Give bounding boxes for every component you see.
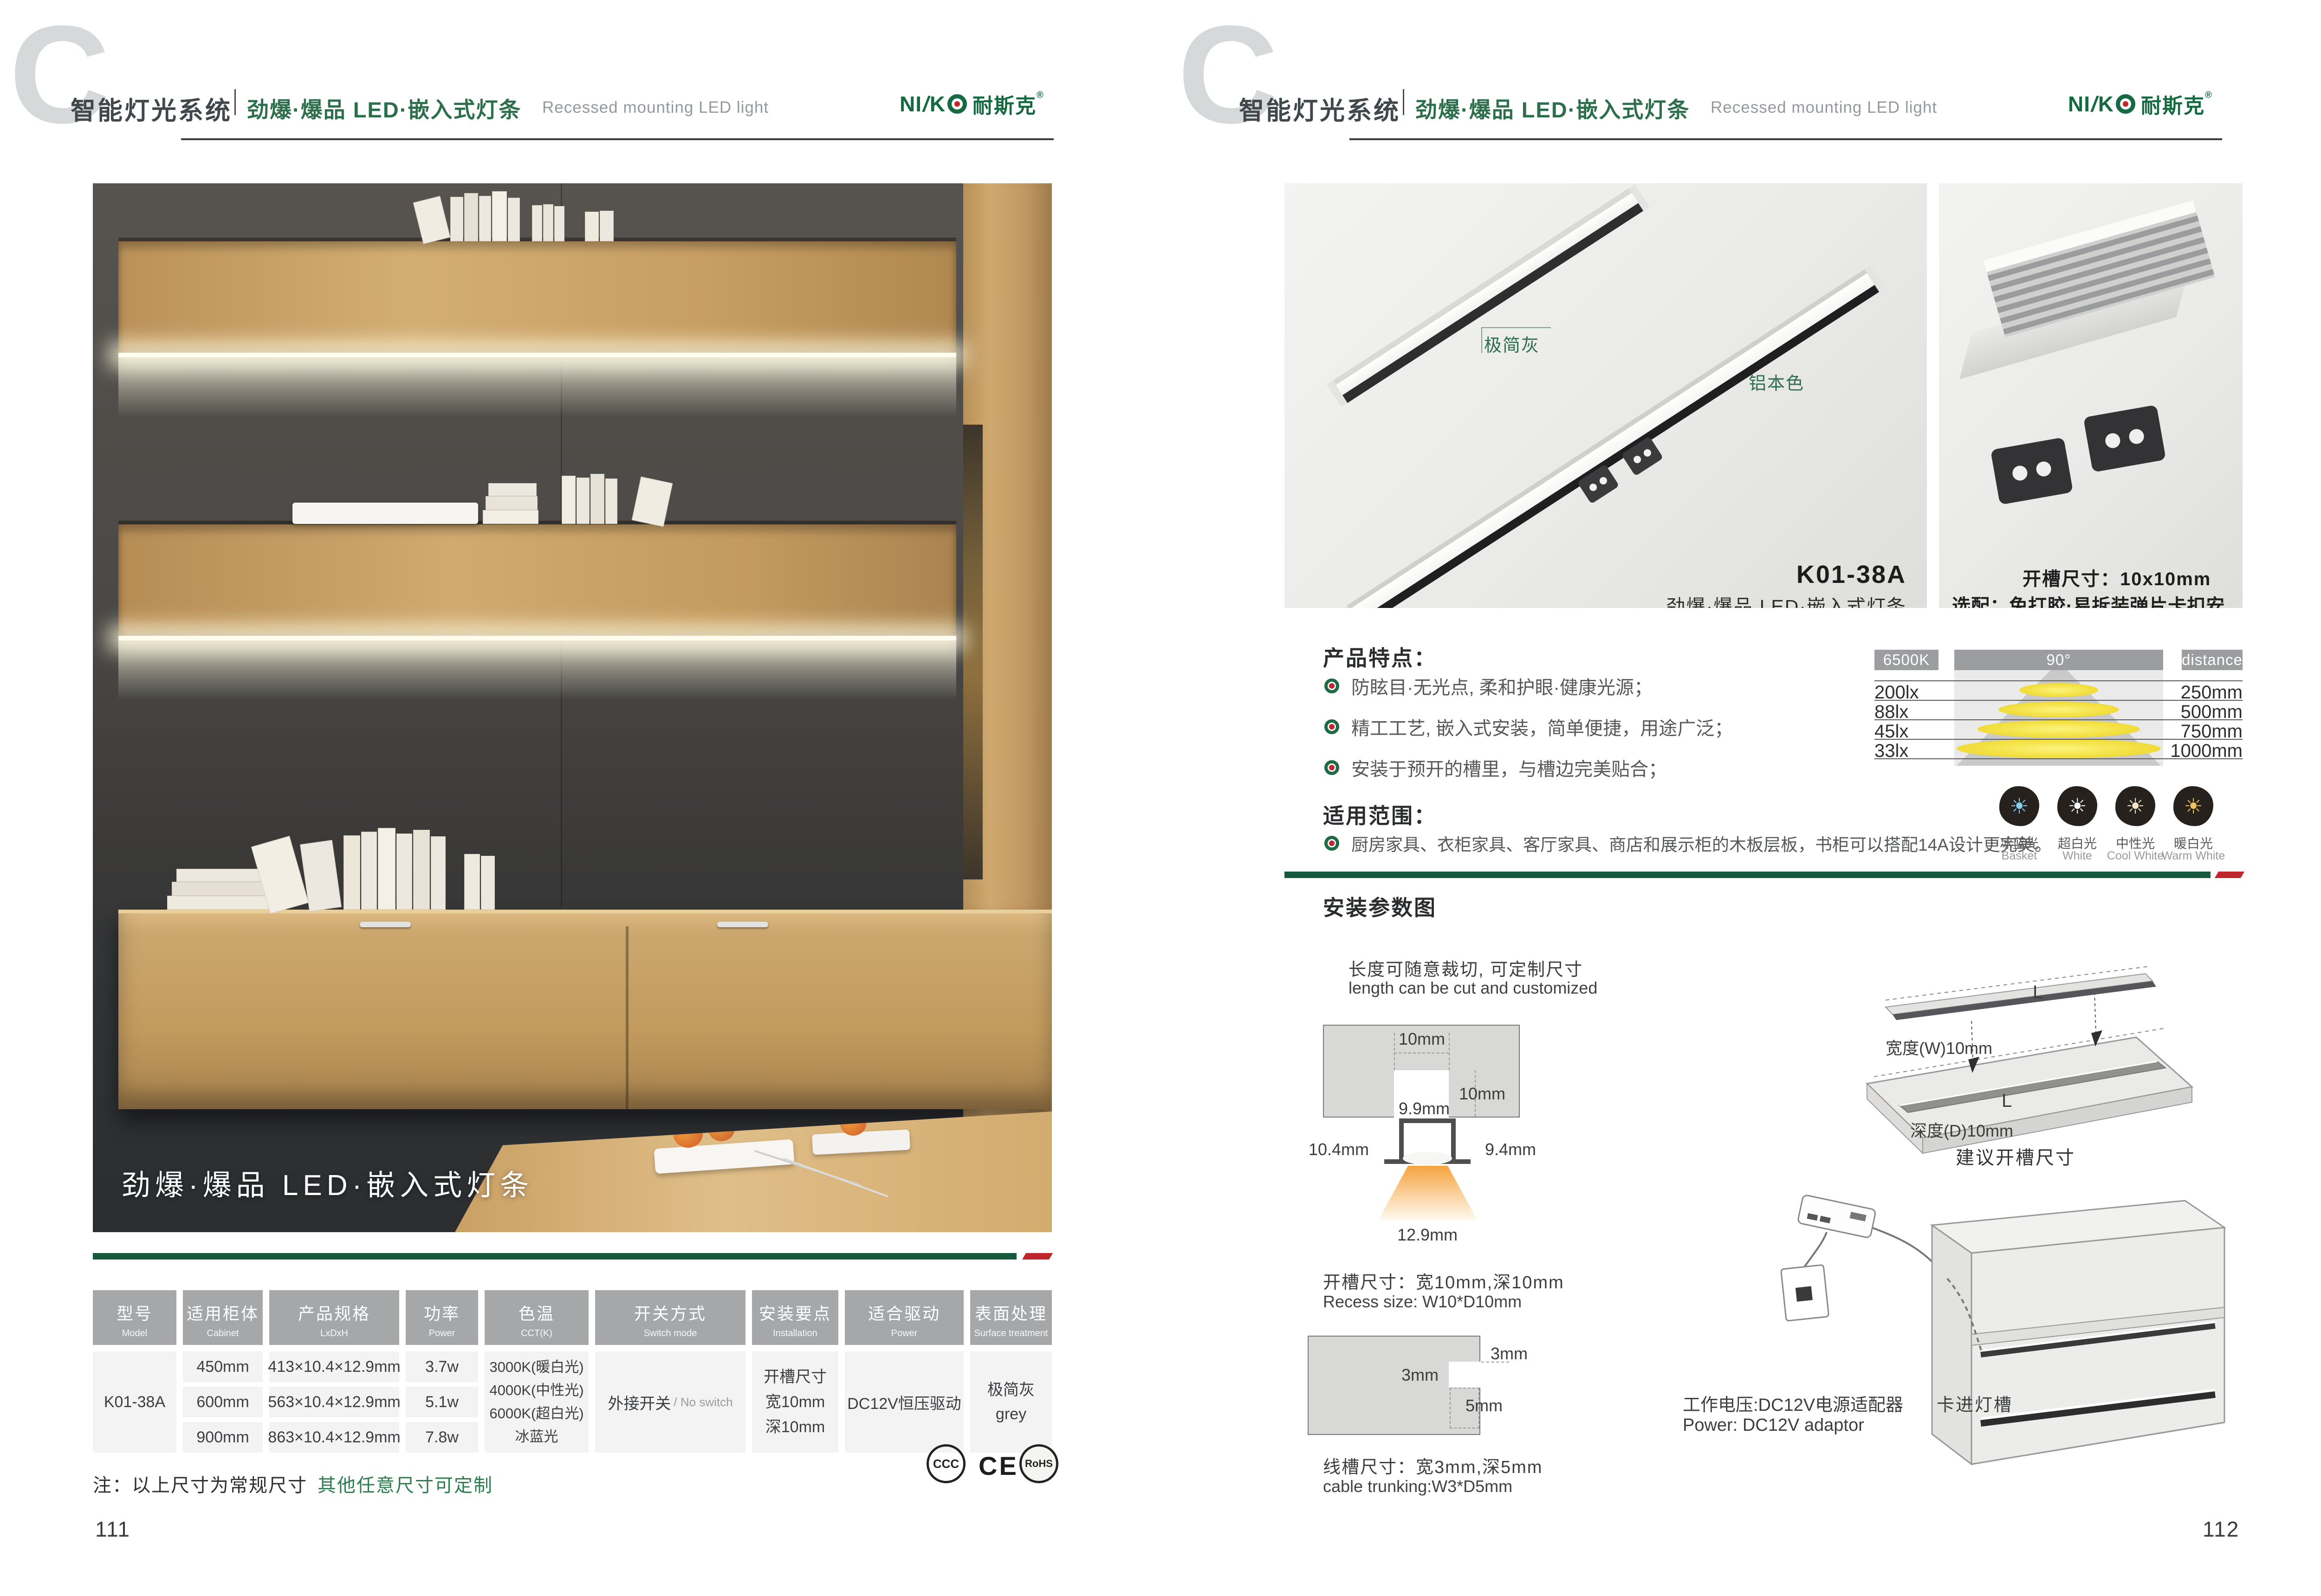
header-divider [234,89,236,115]
label-leader [1481,327,1551,353]
board-caption: 建议开槽尺寸 [1956,1143,2075,1170]
cell-switch: 外接开关/ No switch [595,1351,746,1453]
dim-guide [1394,1033,1395,1070]
light-pool-4 [1957,739,2161,758]
dim-depth: 10mm [1459,1084,1505,1104]
cct-label-en: Warm White [2154,849,2233,863]
cell-install: 开槽尺寸 宽10mm 深10mm [752,1351,838,1453]
size-note: 注：以上尺寸为常规尺寸 其他任意尺寸可定制 [93,1470,493,1497]
led-strip-gray [1333,188,1643,403]
accent-bar-green [93,1253,1017,1260]
col-header-model: 型号Model [93,1290,176,1345]
cabinet-glass-glow [963,425,983,879]
dim-top-width: 10mm [1399,1029,1445,1049]
trunking-notch [1449,1362,1481,1388]
board-width-label: 宽度(W)10mm [1886,1035,1992,1059]
distance-value: 1000mm [2150,741,2243,762]
notch-dim-depth: 5mm [1465,1396,1503,1415]
color-label-aluminum: 铝本色 [1749,369,1804,394]
rohs-cert-icon: RoHS [1019,1444,1058,1483]
col-header-driver: 适合驱动Power [845,1290,964,1345]
cut-note-zh: 长度可随意裁切, 可定制尺寸 [1349,955,1583,981]
option-line: 选配：免打胶·易拆装弹片卡扣安装 [1952,591,2240,608]
distance-value: 250mm [2150,682,2243,703]
mounting-clip-large [1990,437,2073,505]
target-bullet-icon [1324,836,1339,851]
brand-logo: NI / K 耐斯克 ® [900,89,1044,119]
col-header-cct: 色温CCT(K) [485,1290,589,1345]
plate [812,1130,910,1155]
col-header-surface: 表面处理Surface treatment [970,1290,1052,1345]
page-number: 112 [2203,1517,2239,1542]
cct-icon-white: ☀ [2057,786,2097,826]
beam-angle-label: 90° [1954,650,2163,670]
profile-closeup [1939,188,2243,420]
light-pool-3 [1977,720,2140,738]
light-beam [1378,1166,1478,1221]
cell-cct: 3000K(暖白光) 4000K(中性光) 6000K(超白光) 冰蓝光 [485,1351,589,1453]
col-header-spec: 产品规格LxDxH [269,1290,399,1345]
system-title: 智能灯光系统 [71,90,232,127]
diffuser-lens [1403,1152,1452,1165]
target-bullet-icon [1324,678,1339,693]
header-rule [181,138,1054,140]
cell-spec-3: 863×10.4×12.9mm [269,1422,399,1453]
product-code: K01-38A [1702,560,1906,589]
lux-value: 200lx [1874,682,1919,703]
ce-cert-icon: CE [979,1451,1018,1481]
accent-bar-red [2215,872,2244,878]
scope-item: 厨房家具、衣柜家具、客厅家具、商店和展示柜的木板层板，书柜可以搭配14A设计更完… [1324,831,2076,856]
light-pool-2 [1998,702,2119,717]
cell-model: K01-38A [93,1351,176,1453]
cabinet-install-diagram [1772,1181,2241,1487]
white-tray [292,503,478,524]
accent-bar-red [1022,1253,1053,1260]
drawer-handle [717,922,768,927]
features-title: 产品特点： [1323,641,1437,672]
cct-icon-cool-white: ☀ [2115,786,2155,826]
kelvin-label: 6500K [1874,650,1938,670]
trunking-size-zh: 线槽尺寸：宽3mm,深5mm [1323,1453,1543,1478]
accent-bar-green [1284,872,2211,878]
distance-value: 500mm [2150,702,2243,723]
feature-item: 精工工艺, 嵌入式安装，简单便捷，用途广泛； [1324,713,1733,740]
recess-size-en: Recess size: W10*D10mm [1323,1292,1522,1312]
target-bullet-icon [1324,760,1339,775]
lifestyle-photo: 劲爆·爆品 LED·嵌入式灯条 [93,183,1052,1232]
product-series-title: 劲爆·爆品 LED·嵌入式灯条 [247,92,521,124]
col-header-switch: 开关方式Switch mode [595,1290,746,1345]
cutlery [783,1157,888,1197]
cct-icon-warm-white: ☀ [2173,786,2213,826]
cell-spec-1: 413×10.4×12.9mm [269,1351,399,1382]
header-divider [1403,89,1404,115]
photo-caption: 劲爆·爆品 LED·嵌入式灯条 [122,1162,533,1203]
cell-power-3: 7.8w [406,1422,478,1453]
catalog-spread: C 智能灯光系统 劲爆·爆品 LED·嵌入式灯条 Recessed mounti… [0,0,2321,1596]
dim-left-height: 10.4mm [1290,1140,1369,1159]
cell-driver: DC12V恒压驱动 [845,1351,964,1453]
mounting-clip-large [2083,405,2166,472]
notch-dim-right: 3mm [1491,1344,1528,1363]
cut-note-en: length can be cut and customized [1349,978,1597,998]
target-bullet-icon [1324,719,1339,734]
product-series-title-en: Recessed mounting LED light [1711,98,1937,117]
product-photo-detail: 开槽尺寸：10x10mm 选配：免打胶·易拆装弹片卡扣安装 [1939,183,2243,608]
col-header-install: 安装要点Installation [752,1290,838,1345]
notch-dim-left: 3mm [1383,1365,1439,1385]
books-middle [483,462,678,524]
cell-spec-2: 563×10.4×12.9mm [269,1387,399,1417]
system-title: 智能灯光系统 [1239,90,1400,127]
cell-surface: 极简灰 grey [970,1351,1052,1453]
groove-length-label: L [2002,1091,2012,1111]
sideboard [118,910,1052,1109]
power-spec-zh: 工作电压:DC12V电源适配器 [1683,1390,1903,1416]
col-header-power: 功率Power [406,1290,478,1345]
feature-item: 防眩目·无光点, 柔和护眼·健康光源； [1324,672,1653,699]
dim-inner-width: 9.9mm [1399,1099,1445,1118]
cct-icon-ice-blue: ☀ [1999,786,2039,826]
light-distribution-chart: 6500K 90° distance 200lx 88lx 45lx 33lx … [1874,650,2243,770]
cell-cabinet-3: 900mm [183,1422,263,1453]
books-on-sideboard [260,824,548,910]
led-light-pool [118,640,956,700]
scope-title: 适用范围： [1323,799,1437,830]
dim-bottom-width: 12.9mm [1390,1225,1465,1245]
logo-text: NI [900,91,922,116]
cell-cabinet-2: 600mm [183,1387,263,1417]
lux-value: 88lx [1874,702,1908,723]
dim-guide [1449,1033,1450,1070]
page-number: 111 [95,1517,130,1542]
shelf-front-lower [118,524,956,636]
col-header-cabinet: 适用柜体Cabinet [183,1290,263,1345]
dim-right-height: 9.4mm [1485,1140,1536,1159]
brand-logo: NI / K 耐斯克 ® [2068,89,2212,119]
product-desc: 劲爆·爆品 LED·嵌入式灯条 [1609,591,1906,608]
light-pool-1 [2019,683,2098,697]
page-left: C 智能灯光系统 劲爆·爆品 LED·嵌入式灯条 Recessed mounti… [0,0,1168,1596]
feature-item: 安装于预开的槽里，与槽边完美贴合； [1324,754,1667,781]
cell-power-2: 5.1w [406,1387,478,1417]
page-right: C 智能灯光系统 劲爆·爆品 LED·嵌入式灯条 Recessed mounti… [1168,0,2321,1596]
board-length-label: L [2033,982,2043,1003]
product-photo-strips: 极简灰 铝本色 K01-38A 劲爆·爆品 LED·嵌入式灯条 [1284,183,1927,608]
drawer-handle [360,922,411,927]
board-depth-label: 深度(D)10mm [1910,1118,2013,1142]
snap-in-label: 卡进灯槽 [1937,1390,2013,1416]
lux-value: 33lx [1874,741,1908,762]
dim-guide [1394,1053,1449,1053]
logo-target-icon [947,94,967,114]
install-title: 安装参数图 [1323,891,1437,922]
product-series-title: 劲爆·爆品 LED·嵌入式灯条 [1415,92,1690,124]
shelf-front-upper [118,241,956,353]
slot-size-line: 开槽尺寸：10x10mm [2023,564,2231,591]
cell-cabinet-1: 450mm [183,1351,263,1382]
trunking-size-en: cable trunking:W3*D5mm [1323,1477,1512,1496]
drawer-gap [626,926,629,1109]
product-series-title-en: Recessed mounting LED light [542,98,769,117]
logo-target-icon [2116,94,2135,114]
cell-power-1: 3.7w [406,1351,478,1382]
lux-value: 45lx [1874,721,1908,742]
row-line [1874,680,2243,681]
distance-label: distance [2182,650,2243,670]
led-light-pool [118,356,956,417]
header-rule [1349,138,2222,140]
distance-value: 750mm [2150,721,2243,742]
power-spec-en: Power: DC12V adaptor [1683,1415,1864,1435]
books-upper [418,188,636,241]
ccc-cert-icon: CCC [927,1444,966,1483]
recess-size-zh: 开槽尺寸：宽10mm,深10mm [1323,1268,1564,1293]
